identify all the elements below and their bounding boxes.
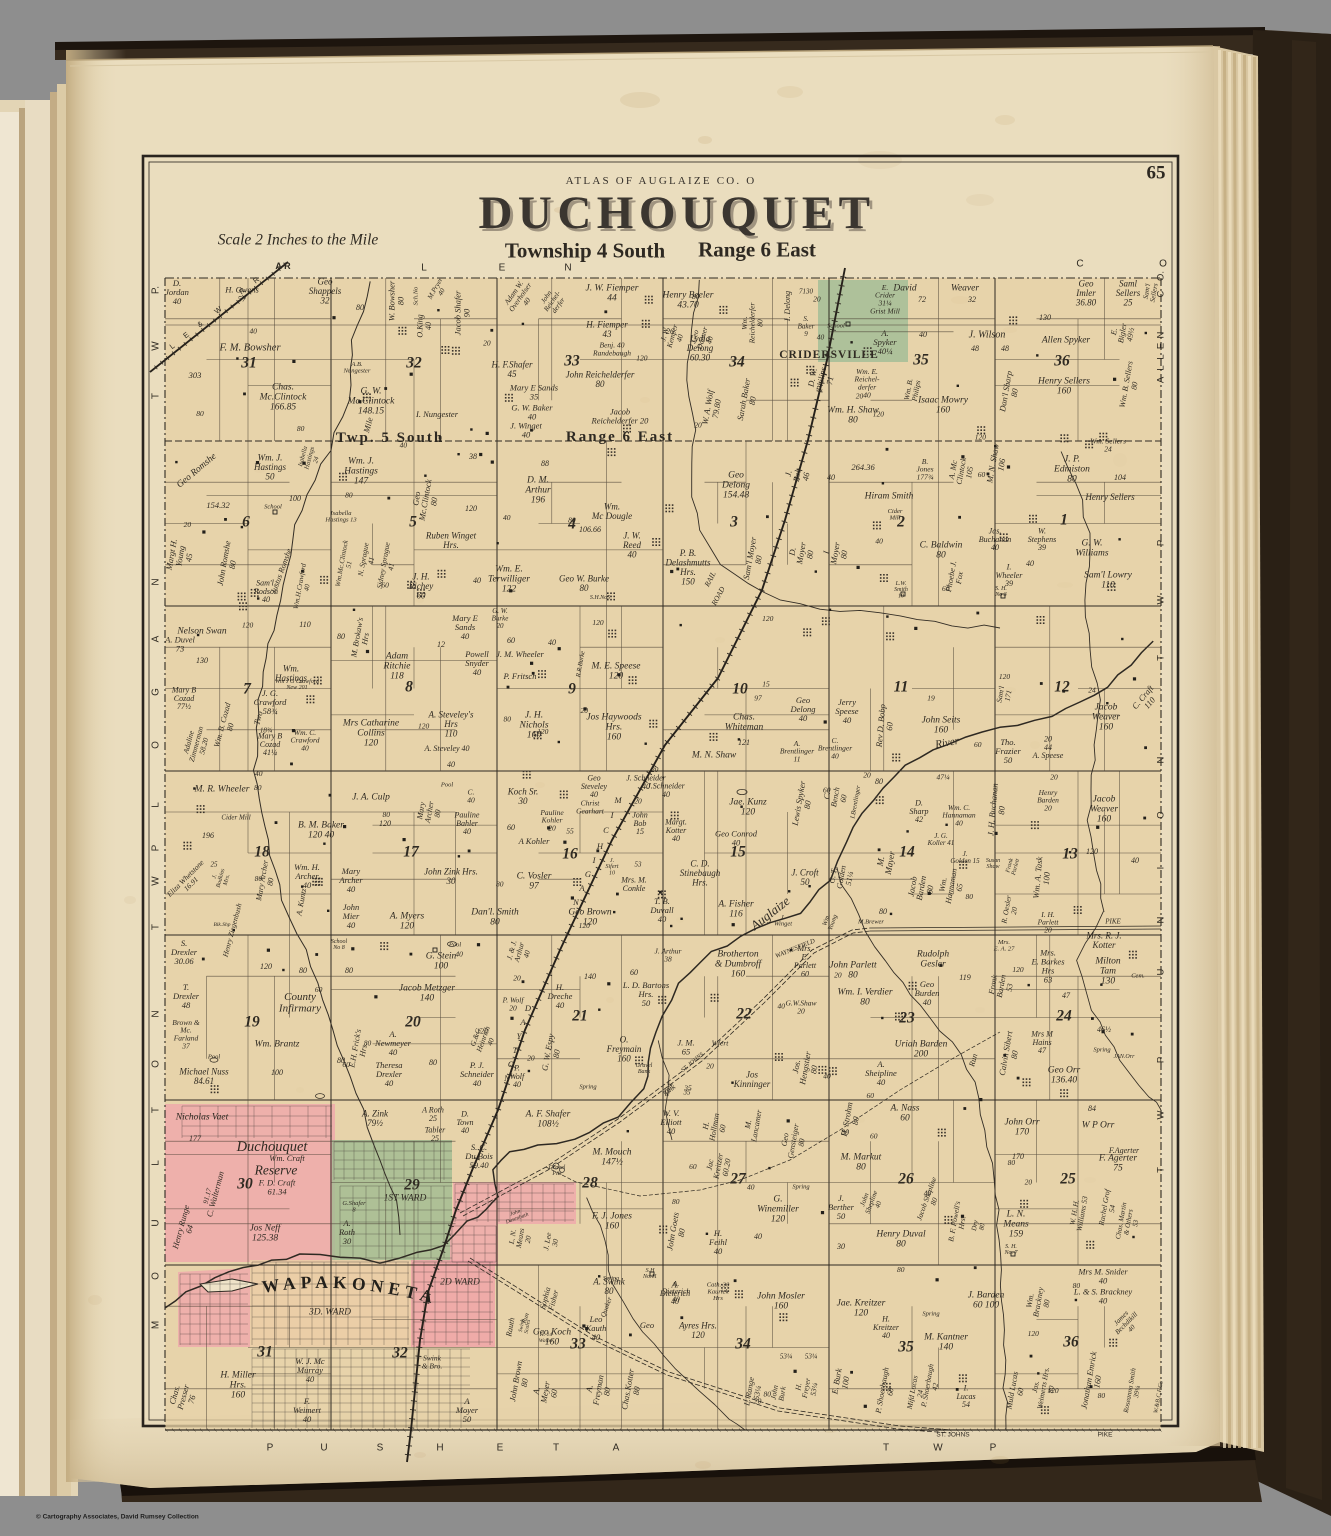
svg-text:84: 84	[1088, 1104, 1096, 1113]
svg-text:80: 80	[196, 409, 204, 418]
svg-text:N: N	[151, 578, 162, 585]
svg-text:20: 20	[863, 771, 871, 780]
svg-text:32: 32	[405, 354, 422, 371]
svg-text:I. Delong: I. Delong	[783, 291, 792, 322]
svg-text:60: 60	[315, 985, 323, 994]
svg-text:T: T	[151, 393, 162, 399]
svg-text:110: 110	[299, 620, 310, 629]
svg-text:M.Brewer: M.Brewer	[857, 918, 884, 925]
svg-text:E: E	[1155, 343, 1166, 349]
svg-text:W: W	[933, 1443, 943, 1454]
svg-text:40: 40	[747, 1182, 755, 1191]
svg-text:130: 130	[196, 656, 208, 665]
svg-text:O: O	[151, 1272, 162, 1280]
svg-text:Spring: Spring	[792, 1183, 810, 1190]
svg-text:J. Wilson: J. Wilson	[969, 330, 1006, 341]
svg-text:Wm. Craft: Wm. Craft	[269, 1153, 305, 1163]
svg-text:O: O	[151, 1060, 162, 1068]
svg-text:40: 40	[777, 1001, 785, 1010]
svg-text:36: 36	[1053, 352, 1070, 369]
svg-text:Spring: Spring	[603, 1276, 619, 1282]
svg-text:120: 120	[379, 819, 391, 828]
svg-text:Geo: Geo	[640, 1320, 654, 1330]
svg-text:20: 20	[634, 797, 642, 806]
svg-text:80: 80	[299, 966, 307, 975]
svg-text:Cider Mill: Cider Mill	[221, 814, 250, 822]
svg-text:13: 13	[1062, 845, 1078, 862]
svg-text:P: P	[1155, 540, 1166, 546]
svg-text:Pool: Pool	[207, 1053, 220, 1060]
svg-text:32: 32	[967, 295, 976, 304]
svg-text:P: P	[1155, 1057, 1166, 1063]
svg-text:34: 34	[734, 1335, 751, 1352]
svg-text:P: P	[267, 1443, 274, 1454]
svg-text:120: 120	[1028, 1329, 1040, 1338]
svg-text:53¼: 53¼	[780, 1353, 793, 1361]
svg-text:3: 3	[729, 513, 738, 530]
svg-text:23: 23	[898, 1009, 915, 1026]
svg-text:A: A	[578, 883, 585, 893]
svg-text:Pool: Pool	[448, 941, 461, 948]
svg-text:60: 60	[381, 580, 389, 589]
svg-text:SusanShaw: SusanShaw	[986, 858, 1000, 870]
svg-text:L: L	[1155, 365, 1166, 370]
svg-text:80: 80	[429, 1058, 437, 1067]
svg-text:25: 25	[1059, 1170, 1076, 1187]
svg-text:A Kohler: A Kohler	[518, 836, 550, 846]
svg-text:60: 60	[870, 1132, 878, 1141]
svg-text:C.40: C.40	[467, 788, 475, 805]
svg-text:P.: P.	[151, 286, 162, 294]
svg-text:22: 22	[735, 1005, 752, 1022]
svg-text:140: 140	[584, 972, 596, 981]
svg-text:48: 48	[971, 344, 979, 353]
svg-text:20: 20	[1025, 1177, 1033, 1186]
svg-text:130: 130	[1039, 313, 1051, 322]
svg-text:L: L	[1155, 354, 1166, 359]
svg-text:M: M	[151, 1321, 162, 1329]
svg-text:40: 40	[817, 332, 825, 341]
svg-text:32: 32	[391, 1344, 408, 1361]
svg-text:15: 15	[762, 680, 770, 689]
svg-text:JAN.Orr: JAN.Orr	[1114, 1054, 1135, 1060]
svg-text:80: 80	[966, 892, 974, 901]
svg-text:Weaver: Weaver	[951, 283, 979, 293]
svg-text:154.32: 154.32	[206, 500, 230, 510]
svg-text:97: 97	[754, 694, 762, 703]
svg-text:60: 60	[507, 636, 515, 645]
svg-text:Township 4 South: Township 4 South	[505, 238, 666, 262]
svg-text:J. A. Culp: J. A. Culp	[352, 792, 390, 802]
svg-text:7: 7	[243, 680, 252, 697]
svg-text:Blk.Shp: Blk.Shp	[214, 922, 231, 928]
svg-text:35: 35	[897, 1338, 914, 1355]
svg-text:31: 31	[256, 1343, 273, 1360]
svg-text:ST. JOHNS: ST. JOHNS	[936, 1431, 970, 1438]
svg-text:GeoImler36.80: GeoImler36.80	[1075, 279, 1097, 308]
svg-text:School: School	[264, 503, 282, 510]
svg-text:17: 17	[403, 843, 420, 860]
svg-text:L: L	[151, 1160, 162, 1166]
svg-text:C: C	[603, 825, 609, 835]
svg-text:N: N	[1155, 331, 1166, 338]
svg-text:N: N	[1155, 756, 1166, 763]
svg-text:3D. WARD: 3D. WARD	[308, 1307, 351, 1317]
svg-text:120: 120	[1086, 847, 1098, 856]
svg-text:80: 80	[1098, 1391, 1106, 1400]
svg-text:80: 80	[504, 715, 512, 724]
svg-text:80: 80	[337, 632, 345, 641]
svg-text:29: 29	[403, 1176, 420, 1193]
svg-text:104: 104	[1114, 473, 1126, 482]
svg-text:120: 120	[579, 921, 591, 930]
svg-text:G: G	[151, 688, 162, 696]
svg-text:80: 80	[764, 1389, 772, 1398]
svg-text:P: P	[990, 1443, 997, 1454]
svg-text:33: 33	[569, 1335, 586, 1352]
svg-text:120: 120	[242, 620, 254, 629]
svg-text:L: L	[151, 802, 162, 808]
svg-text:A R: A R	[275, 261, 291, 271]
svg-text:G: G	[585, 869, 591, 879]
svg-text:28: 28	[581, 1174, 598, 1191]
svg-text:20: 20	[184, 520, 192, 529]
svg-text:PIKE: PIKE	[1098, 1431, 1113, 1438]
svg-text:80: 80	[345, 966, 353, 975]
svg-text:20: 20	[694, 421, 702, 430]
svg-text:Pool: Pool	[440, 781, 453, 788]
svg-text:80: 80	[1008, 1158, 1016, 1167]
svg-text:80: 80	[255, 874, 263, 883]
svg-text:Geo Orr136.40: Geo Orr136.40	[1048, 1065, 1081, 1085]
svg-text:1: 1	[1060, 511, 1068, 528]
svg-text:120: 120	[476, 1027, 488, 1036]
svg-text:W P Orr: W P Orr	[1082, 1120, 1115, 1130]
svg-text:24: 24	[1055, 1007, 1072, 1024]
svg-text:40: 40	[924, 1188, 932, 1197]
svg-text:CountyInfirmary: CountyInfirmary	[278, 991, 321, 1015]
svg-text:O: O	[151, 741, 162, 749]
svg-text:120: 120	[762, 614, 774, 623]
svg-text:60: 60	[978, 470, 986, 479]
svg-text:© Cartography Associates, Davi: © Cartography Associates, David Rumsey C…	[36, 1512, 199, 1520]
svg-text:C: C	[1155, 290, 1166, 297]
svg-text:Range 6 East: Range 6 East	[566, 429, 674, 445]
svg-text:A: A	[1155, 376, 1166, 383]
svg-text:PIKE: PIKE	[1104, 918, 1121, 926]
svg-text:7130: 7130	[799, 287, 814, 295]
svg-text:T: T	[1155, 1167, 1166, 1173]
svg-text:Allen Spyker: Allen Spyker	[1041, 335, 1091, 345]
svg-text:20: 20	[706, 1062, 714, 1071]
svg-text:19: 19	[244, 1013, 260, 1030]
svg-text:Spring: Spring	[579, 1083, 597, 1090]
svg-text:T: T	[151, 1107, 162, 1113]
svg-text:40: 40	[250, 327, 258, 336]
svg-text:30: 30	[836, 1242, 845, 1251]
svg-text:J. Barden60 100: J. Barden60 100	[968, 1290, 1005, 1310]
svg-text:53: 53	[635, 861, 643, 869]
svg-text:120: 120	[592, 618, 604, 627]
svg-text:J. M. Wheeler: J. M. Wheeler	[496, 649, 544, 659]
svg-text:40: 40	[503, 513, 511, 522]
svg-text:W: W	[1155, 595, 1166, 604]
svg-text:ATLAS OF AUGLAIZE CO. O: ATLAS OF AUGLAIZE CO. O	[566, 175, 757, 187]
svg-text:I. Nungester: I. Nungester	[415, 409, 459, 419]
svg-text:60: 60	[630, 968, 638, 977]
svg-text:65: 65	[1147, 163, 1166, 184]
svg-text:L: L	[421, 263, 427, 274]
svg-text:E: E	[497, 1443, 504, 1454]
svg-text:C: C	[1076, 259, 1083, 270]
svg-text:120: 120	[999, 672, 1011, 681]
svg-text:1ST WARD: 1ST WARD	[384, 1193, 427, 1203]
svg-text:40: 40	[473, 576, 481, 585]
svg-text:10: 10	[732, 680, 748, 697]
svg-text:40: 40	[875, 537, 883, 546]
svg-text:Twp. 5 South: Twp. 5 South	[336, 430, 444, 446]
svg-text:40: 40	[455, 950, 463, 959]
svg-text:264.36: 264.36	[851, 462, 875, 472]
svg-text:100: 100	[271, 1068, 283, 1077]
svg-text:DUCHOUQUET: DUCHOUQUET	[478, 187, 875, 239]
svg-text:40: 40	[754, 1232, 762, 1241]
svg-text:40: 40	[1131, 856, 1139, 865]
svg-text:S: S	[377, 1443, 384, 1454]
svg-text:Mrs. M.Conkle: Mrs. M.Conkle	[620, 876, 647, 893]
svg-text:M. R. Wheeler: M. R. Wheeler	[194, 784, 250, 794]
svg-text:H: H	[436, 1443, 443, 1454]
svg-text:34: 34	[728, 353, 745, 370]
svg-text:27: 27	[729, 1170, 747, 1187]
svg-text:106.66: 106.66	[579, 525, 601, 534]
svg-text:Range 6 East: Range 6 East	[698, 237, 816, 261]
svg-text:20: 20	[404, 1013, 421, 1030]
svg-text:80: 80	[897, 1265, 905, 1274]
svg-text:T: T	[883, 1443, 889, 1454]
svg-text:40: 40	[447, 760, 455, 769]
svg-text:35: 35	[912, 351, 929, 368]
svg-text:M. N. Shaw: M. N. Shaw	[691, 750, 737, 760]
svg-text:120: 120	[418, 722, 430, 731]
svg-text:RudolphGesler: RudolphGesler	[916, 949, 949, 969]
svg-text:20: 20	[754, 1396, 762, 1405]
svg-text:21: 21	[571, 1007, 588, 1024]
svg-text:80: 80	[496, 879, 504, 888]
svg-text:20: 20	[856, 392, 864, 401]
svg-text:F.Agerter: F.Agerter	[1108, 1146, 1140, 1155]
svg-text:A: A	[151, 635, 162, 642]
svg-text:I: I	[1155, 867, 1166, 870]
svg-text:Swink& Bro.: Swink& Bro.	[422, 1354, 443, 1371]
svg-text:David: David	[892, 283, 916, 293]
svg-text:80: 80	[297, 424, 305, 433]
svg-text:Spring: Spring	[922, 1310, 940, 1317]
svg-text:33: 33	[563, 352, 580, 369]
svg-text:Spring: Spring	[1093, 1046, 1111, 1053]
svg-text:SwinkScales: SwinkScales	[518, 1318, 532, 1334]
svg-text:119: 119	[959, 973, 970, 982]
svg-text:177: 177	[189, 1134, 202, 1143]
svg-text:80: 80	[382, 810, 390, 819]
svg-text:U: U	[1155, 968, 1166, 975]
svg-text:6: 6	[242, 513, 250, 530]
svg-text:40: 40	[827, 473, 835, 482]
svg-text:196: 196	[202, 831, 214, 840]
svg-text:F. M. Bowsher: F. M. Bowsher	[218, 343, 281, 354]
svg-text:60: 60	[942, 584, 950, 593]
svg-text:Wfert: Wfert	[712, 1039, 730, 1048]
svg-text:60: 60	[823, 786, 831, 795]
svg-text:80: 80	[364, 1039, 372, 1048]
svg-text:Scale 2 Inches to the Mile: Scale 2 Inches to the Mile	[218, 231, 379, 248]
svg-text:T: T	[553, 1443, 559, 1454]
svg-text:60: 60	[866, 1091, 874, 1100]
svg-text:20: 20	[651, 765, 659, 774]
svg-text:120: 120	[260, 962, 272, 971]
svg-text:16: 16	[562, 845, 578, 862]
svg-text:100: 100	[289, 494, 301, 503]
svg-text:20: 20	[513, 974, 521, 983]
svg-text:W: W	[1155, 1110, 1166, 1119]
svg-text:60: 60	[342, 1060, 350, 1069]
svg-text:120: 120	[636, 353, 648, 362]
svg-text:20: 20	[527, 1054, 535, 1063]
svg-text:W: W	[151, 876, 162, 886]
svg-text:303: 303	[188, 370, 202, 380]
svg-text:D: D	[524, 1003, 532, 1013]
svg-text:School: School	[827, 322, 845, 329]
svg-text:H. 14Walter: H. 14Walter	[539, 1331, 554, 1344]
svg-text:N: N	[151, 1010, 162, 1017]
svg-text:E: E	[499, 263, 506, 274]
svg-text:80: 80	[254, 783, 262, 792]
svg-text:30: 30	[236, 1175, 253, 1192]
svg-text:U: U	[320, 1443, 327, 1454]
svg-text:W: W	[151, 341, 162, 351]
svg-text:40: 40	[255, 769, 263, 778]
svg-text:Wm. Brantz: Wm. Brantz	[255, 1039, 300, 1049]
svg-text:120: 120	[873, 410, 885, 419]
svg-text:60: 60	[974, 740, 982, 749]
svg-text:60: 60	[689, 1162, 697, 1171]
svg-text:Reserve: Reserve	[254, 1163, 298, 1178]
svg-text:120: 120	[1047, 1386, 1059, 1395]
svg-text:40: 40	[823, 1072, 831, 1081]
svg-text:P: P	[151, 844, 162, 851]
svg-text:Cem.: Cem.	[1131, 972, 1145, 979]
svg-text:T: T	[1155, 655, 1166, 661]
svg-text:20: 20	[1050, 773, 1058, 782]
svg-text:40: 40	[919, 330, 927, 339]
svg-text:120: 120	[465, 504, 477, 513]
svg-text:88: 88	[541, 459, 549, 468]
svg-text:O: O	[1159, 259, 1167, 270]
svg-text:80: 80	[672, 1197, 680, 1206]
svg-text:24: 24	[1088, 686, 1096, 695]
svg-text:31: 31	[240, 354, 257, 371]
svg-text:80: 80	[879, 907, 887, 916]
svg-text:P. Fritsch: P. Fritsch	[503, 671, 537, 681]
svg-text:GravelBank: GravelBank	[636, 1063, 653, 1075]
svg-text:47¼: 47¼	[936, 773, 950, 782]
svg-text:18¾: 18¾	[260, 727, 273, 735]
svg-text:48: 48	[1001, 344, 1009, 353]
svg-text:Nicholas Vaet: Nicholas Vaet	[175, 1112, 229, 1122]
svg-text:8: 8	[405, 678, 413, 695]
svg-text:M: M	[613, 795, 622, 805]
svg-text:80: 80	[1073, 1281, 1081, 1290]
svg-text:53¼: 53¼	[805, 1353, 818, 1361]
svg-text:80: 80	[692, 292, 700, 301]
svg-text:80: 80	[345, 491, 353, 500]
svg-text:20: 20	[483, 339, 491, 348]
svg-text:U: U	[151, 1219, 162, 1226]
svg-text:80: 80	[356, 303, 364, 312]
svg-text:55: 55	[566, 827, 574, 836]
svg-text:A. Steveley 40: A. Steveley 40	[423, 744, 469, 753]
svg-text:120: 120	[537, 727, 549, 736]
svg-text:80: 80	[875, 777, 883, 786]
svg-text:14: 14	[899, 843, 915, 860]
svg-text:25: 25	[211, 861, 219, 869]
svg-text:11: 11	[894, 678, 909, 695]
svg-text:Hiram Smith: Hiram Smith	[864, 491, 914, 501]
svg-text:12: 12	[437, 640, 445, 649]
svg-text:80: 80	[568, 516, 576, 525]
svg-text:Jos Neff125.38: Jos Neff125.38	[250, 1222, 282, 1243]
svg-text:47: 47	[1062, 991, 1071, 1000]
svg-text:12: 12	[1054, 678, 1070, 695]
svg-text:18: 18	[254, 843, 270, 860]
svg-text:38: 38	[468, 452, 477, 461]
svg-text:N: N	[1155, 916, 1166, 923]
svg-text:26: 26	[897, 1170, 914, 1187]
svg-text:35: 35	[683, 1089, 692, 1097]
svg-text:60: 60	[507, 823, 515, 832]
svg-text:9: 9	[568, 680, 576, 697]
svg-text:40: 40	[1026, 559, 1034, 568]
svg-text:40: 40	[548, 638, 556, 647]
svg-text:N: N	[564, 263, 571, 274]
svg-text:A: A	[613, 1443, 620, 1454]
svg-text:120: 120	[1012, 965, 1024, 974]
svg-text:Henry Sellers: Henry Sellers	[1084, 492, 1135, 502]
svg-text:O.: O.	[1155, 271, 1166, 281]
svg-text:20: 20	[834, 970, 842, 979]
svg-text:72: 72	[918, 295, 926, 304]
svg-text:Sch.No: Sch.No	[412, 286, 419, 305]
svg-text:20: 20	[813, 295, 821, 304]
svg-text:2D WARD: 2D WARD	[440, 1277, 480, 1287]
svg-text:A: A	[519, 1017, 526, 1027]
svg-text:O: O	[1155, 811, 1166, 818]
svg-text:19: 19	[927, 694, 935, 703]
svg-text:T: T	[151, 924, 162, 930]
svg-text:5: 5	[409, 513, 417, 530]
svg-text:36: 36	[1062, 1333, 1079, 1350]
